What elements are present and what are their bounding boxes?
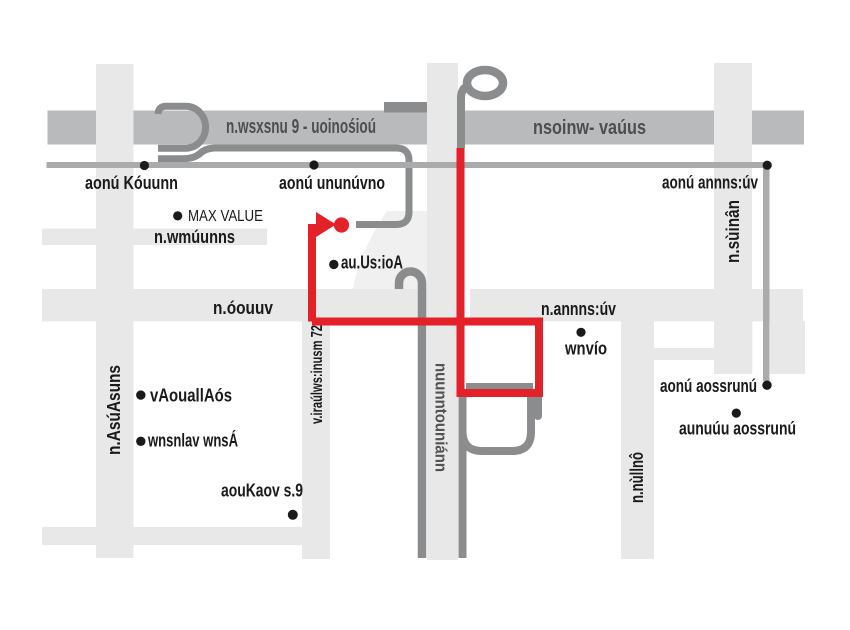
svg-text:v.iraúlws:inusm 72: v.iraúlws:inusm 72 [309, 325, 326, 424]
svg-text:aonú aossrunú: aonú aossrunú [660, 376, 757, 396]
svg-text:n.annns:úv: n.annns:úv [541, 299, 616, 319]
svg-text:au.Us:ioA: au.Us:ioA [341, 253, 403, 273]
svg-text:aonú ununúvno: aonú ununúvno [279, 173, 385, 193]
svg-text:wnsnlav wnsÁ: wnsnlav wnsÁ [147, 430, 238, 451]
svg-text:n.AsúAsuns: n.AsúAsuns [104, 365, 124, 455]
svg-text:aonú annns:úv: aonú annns:úv [662, 173, 758, 193]
svg-text:nuunntouniánn: nuunntouniánn [432, 363, 451, 472]
svg-text:aouKaov s.9: aouKaov s.9 [221, 481, 303, 501]
svg-text:n.wsxsnu 9 - uoinośioú: n.wsxsnu 9 - uoinośioú [226, 116, 376, 138]
svg-text:n.óouuv: n.óouuv [213, 298, 273, 318]
svg-text:aonú Kóuunn: aonú Kóuunn [85, 173, 178, 193]
svg-text:vAouallAós: vAouallAós [150, 386, 232, 406]
svg-text:MAX VALUE: MAX VALUE [188, 208, 263, 225]
svg-text:wnvío: wnvío [564, 339, 607, 359]
svg-text:n.wmúunns: n.wmúunns [154, 227, 235, 247]
svg-text:nsoinw- vaúus: nsoinw- vaúus [533, 117, 646, 139]
svg-text:n.nùllnô: n.nùllnô [627, 452, 647, 503]
svg-text:n.sùinân: n.sùinân [723, 200, 743, 263]
svg-text:aunuúu aossrunú: aunuúu aossrunú [679, 419, 796, 439]
